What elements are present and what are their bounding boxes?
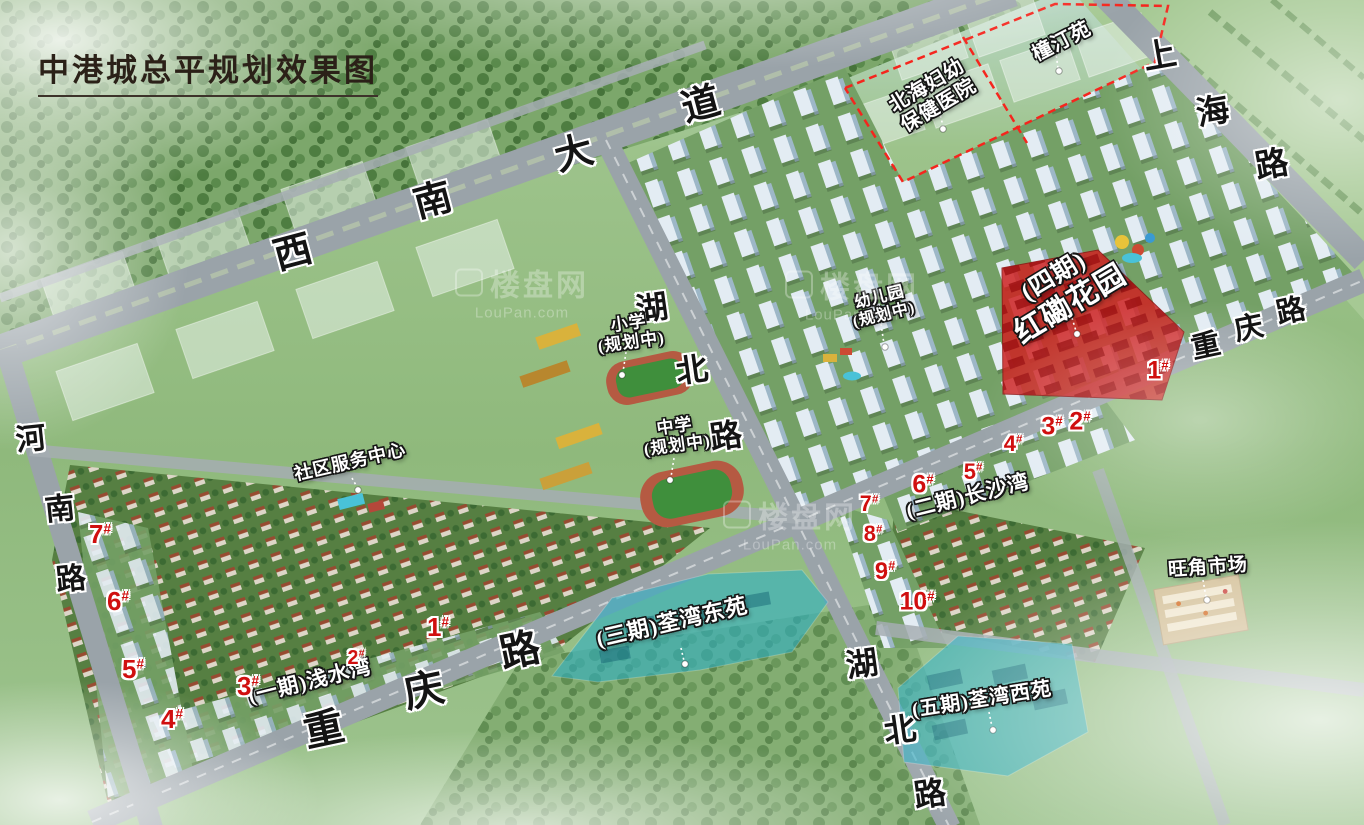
watermark-text-en: LouPan.com [455,305,589,322]
marker-hash: # [926,471,933,486]
marker-number: 5 [122,654,136,684]
road-label-henan-char-2: 路 [55,564,88,597]
marker-number: 3 [1041,413,1055,441]
watermark-row: 楼盘网 [455,261,589,305]
road-label-henan-char-0: 河 [15,424,48,457]
watermark-row: 楼盘网 [785,263,919,307]
watermark: 楼盘网 LouPan.com [723,493,857,554]
building-marker-west-3: 3# [237,673,259,699]
building-marker-east-8: 8# [864,523,883,545]
road-label-henan-char-1: 南 [44,494,77,527]
building-marker-east-2: 2# [1069,409,1090,434]
marker-hash: # [876,524,882,536]
building-marker-east-6: 6# [912,472,933,497]
marker-number: 4 [1004,431,1016,456]
watermark-logo-icon [455,269,483,297]
marker-hash: # [103,521,111,536]
masterplan-rendering: 中港城总平规划效果图 西 南 大 道 上 海 路 重 庆 路 河 南 路 重 庆… [0,0,1364,825]
road-label-hubei-south-char-0: 湖 [844,646,880,682]
marker-number: 1 [1147,357,1161,385]
watermark: 楼盘网 LouPan.com [455,261,589,322]
building-marker-west-5: 5# [122,656,144,682]
watermark-row: 楼盘网 [723,493,857,537]
marker-number: 1 [427,612,441,642]
road-label-hubei-south-char-2: 路 [912,776,948,812]
building-marker-west-2: 2# [348,648,365,668]
road-label-hubei-center-char-2: 路 [708,418,744,454]
marker-hash: # [1055,413,1062,428]
marker-hash: # [1083,408,1090,423]
marker-number: 2 [348,647,359,669]
marker-hash: # [1161,357,1168,372]
marker-hash: # [359,648,365,659]
building-marker-west-4: 4# [161,706,183,732]
marker-hash: # [136,656,144,671]
road-label-chongqing-south-char-1: 庆 [400,667,447,714]
watermark-logo-icon [785,271,813,299]
building-marker-east-9: 9# [875,560,895,584]
marker-hash: # [927,588,934,603]
road-label-chongqing-south-char-0: 重 [300,706,347,753]
building-marker-east-1: 1# [1147,358,1168,383]
marker-number: 7 [89,519,103,549]
watermark-text-cn: 楼盘网 [820,263,919,307]
marker-hash: # [121,588,129,603]
building-marker-east-4: 4# [1004,433,1023,455]
marker-hash: # [1016,434,1022,446]
marker-hash: # [888,559,895,573]
aerial-scene [0,0,1364,825]
road-label-chongqing-east-char-2: 路 [1274,295,1308,329]
watermark-text-en: LouPan.com [785,307,919,324]
road-label-hubei-center-char-1: 北 [674,352,710,388]
marker-number: 6 [912,471,926,499]
marker-hash: # [251,673,259,688]
watermark-text-cn: 楼盘网 [758,493,857,537]
marker-number: 9 [875,558,888,585]
building-marker-west-7: 7# [89,521,111,547]
marker-hash: # [441,614,449,629]
road-label-chongqing-east-char-0: 重 [1189,330,1223,364]
marker-number: 3 [237,671,251,701]
building-marker-east-10: 10# [899,589,934,614]
building-marker-east-5: 5# [964,461,983,483]
watermark: 楼盘网 LouPan.com [785,263,919,324]
watermark-text-cn: 楼盘网 [490,261,589,305]
marker-number: 7 [860,491,872,516]
page-title: 中港城总平规划效果图 [38,45,378,97]
road-label-shanghai-char-1: 海 [1194,94,1232,132]
marker-number: 2 [1069,408,1083,436]
building-marker-west-6: 6# [107,588,129,614]
marker-number: 6 [107,586,121,616]
marker-number: 8 [864,521,876,546]
building-marker-east-3: 3# [1041,414,1062,439]
marker-hash: # [872,494,878,506]
road-label-chongqing-south-char-2: 路 [496,627,543,674]
building-marker-east-7: 7# [860,493,879,515]
watermark-logo-icon [723,501,751,529]
marker-number: 10 [899,588,927,616]
building-marker-west-1: 1# [427,614,449,640]
watermark-text-en: LouPan.com [723,537,857,554]
marker-number: 5 [964,459,976,484]
road-label-chongqing-east-char-1: 庆 [1232,312,1266,346]
marker-hash: # [976,462,982,474]
marker-number: 4 [161,704,175,734]
marker-hash: # [175,706,183,721]
road-label-shanghai-char-0: 上 [1141,38,1179,76]
road-label-shanghai-char-2: 路 [1253,147,1291,185]
